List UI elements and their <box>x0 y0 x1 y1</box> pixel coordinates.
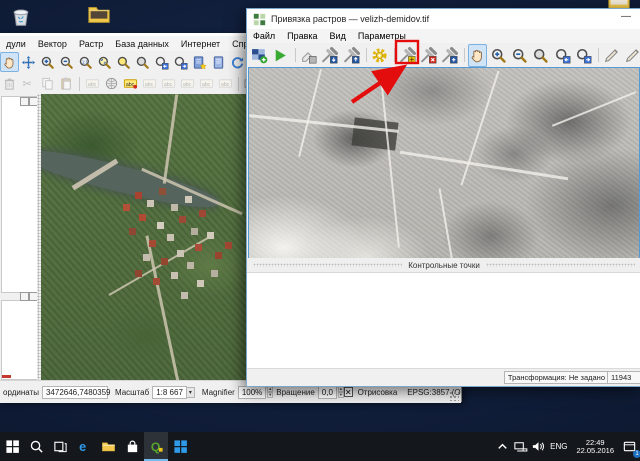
render-checkbox[interactable]: ✕ <box>344 387 353 397</box>
georeferencer-toolbar <box>247 43 640 67</box>
delete-point-icon <box>420 47 437 64</box>
system-tray: ENG 22:49 22.05.2016 1 <box>493 432 640 461</box>
pan-to-selection-icon <box>21 55 36 70</box>
labeling-options-button[interactable]: abc <box>83 74 102 94</box>
action-center-button[interactable]: 1 <box>620 432 638 461</box>
toolbar-separator <box>238 77 239 91</box>
notification-badge: 1 <box>633 450 640 458</box>
transformation-settings-icon <box>371 47 388 64</box>
link-georef-to-qgis-button[interactable] <box>602 44 621 67</box>
hidden-icons-chevron[interactable] <box>493 432 511 461</box>
open-raster-button[interactable] <box>250 44 269 67</box>
browser-panel[interactable] <box>1 300 38 380</box>
cut-features-button[interactable]: ✂ <box>19 74 38 94</box>
left-dock-area <box>0 94 40 380</box>
save-gcp-icon <box>343 47 360 64</box>
transformation-settings-button[interactable] <box>370 44 389 67</box>
photo-dark-block <box>351 117 398 150</box>
layers-panel[interactable] <box>1 96 38 293</box>
splitter-dots[interactable] <box>486 263 635 267</box>
georeferencer-app-icon <box>253 13 266 26</box>
zoom-full-icon <box>97 55 112 70</box>
toolbar-separator <box>366 48 367 62</box>
menu-database[interactable]: База данных <box>109 39 175 49</box>
load-gcp-icon <box>321 47 338 64</box>
scale-label: Масштаб <box>115 388 149 397</box>
link-georef-to-qgis-icon <box>603 47 620 64</box>
start-georeferencing-icon <box>272 47 289 64</box>
highlight-labels-icon: abc <box>161 76 176 91</box>
render-label: Отрисовка <box>358 388 398 397</box>
new-bookmark-button[interactable] <box>190 52 209 72</box>
zoom-to-selection-icon <box>116 55 131 70</box>
pan-button[interactable] <box>0 52 19 72</box>
new-bookmark-icon <box>192 55 207 70</box>
georeferencer-statusbar: Трансформация: Не задано 11943 <box>247 368 640 386</box>
coordinates-input[interactable]: 3472646,7480359 <box>42 386 108 399</box>
task-view-button[interactable] <box>48 432 72 461</box>
minimize-button[interactable]: — <box>619 11 633 25</box>
zoom-to-layer-button[interactable] <box>531 44 550 67</box>
zoom-in-button[interactable] <box>489 44 508 67</box>
move-label-button[interactable]: abc <box>178 74 197 94</box>
zoom-next-icon <box>173 55 188 70</box>
search-button[interactable] <box>24 432 48 461</box>
gcp-section-label: Контрольные точки <box>408 261 480 270</box>
pan-icon <box>2 55 17 70</box>
zoom-to-selection-button[interactable] <box>114 52 133 72</box>
paste-features-icon <box>59 76 74 91</box>
open-raster-icon <box>251 47 268 64</box>
recycle-bin-icon[interactable] <box>8 4 34 30</box>
change-label-icon: abc <box>218 76 233 91</box>
pan-to-selection-button[interactable] <box>19 52 38 72</box>
panel2-float-button[interactable] <box>20 292 29 301</box>
move-point-icon <box>441 47 458 64</box>
svg-text:Q: Q <box>150 440 159 454</box>
menu-vector[interactable]: Вектор <box>32 39 73 49</box>
show-bookmarks-icon <box>211 55 226 70</box>
gdal-script-icon <box>300 47 317 64</box>
windows-app-button[interactable] <box>168 432 192 461</box>
paste-features-button[interactable] <box>57 74 76 94</box>
splitter-dots[interactable] <box>253 263 402 267</box>
store-button[interactable] <box>120 432 144 461</box>
highlight-labels-button[interactable]: abc <box>159 74 178 94</box>
zoom-out-icon <box>511 47 528 64</box>
georeferencer-menubar: ФайлПравкаВидПараметры <box>247 29 640 43</box>
rotate-label-icon: abc <box>199 76 214 91</box>
zoom-out-button[interactable] <box>510 44 529 67</box>
label-pie-icon <box>104 76 119 91</box>
georeferencer-titlebar[interactable]: Привязка растров — velizh-demidov.tif — <box>247 9 640 29</box>
move-point-button[interactable] <box>440 44 459 67</box>
windows-taskbar: e Q ENG 22:49 22.05.2016 1 <box>0 432 640 461</box>
labeling-options-icon: abc <box>85 76 100 91</box>
transformation-status: Трансформация: Не задано <box>504 371 609 384</box>
pan-button[interactable] <box>468 44 487 67</box>
svg-text:abc: abc <box>145 82 154 88</box>
menu-settings[interactable]: Параметры <box>352 31 412 41</box>
zoom-last-button[interactable] <box>152 52 171 72</box>
svg-text:abc: abc <box>88 82 97 88</box>
zoom-native-icon: 1:1 <box>78 55 93 70</box>
add-point-button[interactable] <box>398 44 417 67</box>
start-button[interactable] <box>0 432 24 461</box>
toolbar-separator <box>598 48 599 62</box>
photo-road <box>439 188 454 260</box>
delete-selected-button[interactable] <box>0 74 19 94</box>
toolbar-separator <box>295 48 296 62</box>
scale-combo[interactable]: 1:8 667 <box>152 386 187 399</box>
rotation-label: Вращение <box>276 388 315 397</box>
change-label-button[interactable]: abc <box>216 74 235 94</box>
toolbar-separator <box>394 48 395 62</box>
zoom-last-button[interactable] <box>552 44 571 67</box>
photo-road <box>380 78 400 247</box>
panel-float-button[interactable] <box>20 97 29 106</box>
scale-combo-arrow[interactable]: ▾ <box>186 387 195 398</box>
river-feature <box>41 142 221 216</box>
zoom-next-icon <box>575 47 592 64</box>
gcp-section-header: Контрольные точки <box>247 258 640 272</box>
language-indicator[interactable]: ENG <box>550 442 567 451</box>
zoom-last-icon <box>154 55 169 70</box>
menu-view[interactable]: Вид <box>324 31 352 41</box>
qgis-taskbar-button[interactable]: Q <box>144 432 168 461</box>
clock[interactable]: 22:49 22.05.2016 <box>576 439 614 455</box>
svg-text:abc: abc <box>221 82 230 88</box>
zoom-out-icon <box>59 55 74 70</box>
refresh-button[interactable] <box>228 52 247 72</box>
photo-road <box>552 91 636 127</box>
coordinates-label: ординаты <box>3 388 39 397</box>
zoom-full-button[interactable] <box>95 52 114 72</box>
photo-houses <box>249 68 251 70</box>
road-feature <box>163 94 178 184</box>
zoom-last-icon <box>554 47 571 64</box>
road-feature <box>109 234 214 296</box>
toolbar-separator <box>464 48 465 62</box>
pin-labels-button[interactable]: abc <box>140 74 159 94</box>
menu-modules[interactable]: дули <box>0 39 32 49</box>
toolbar-separator <box>79 77 80 91</box>
svg-text:abc: abc <box>164 82 173 88</box>
menu-file[interactable]: Файл <box>247 31 281 41</box>
svg-text:✂: ✂ <box>22 78 31 91</box>
magnifier-label: Magnifier <box>202 388 235 397</box>
menu-raster[interactable]: Растр <box>73 39 109 49</box>
labeling-active-icon: abc <box>123 76 138 91</box>
pin-labels-icon: abc <box>142 76 157 91</box>
zoom-next-button[interactable] <box>574 44 593 67</box>
georeferencer-title: Привязка растров — velizh-demidov.tif <box>271 14 429 24</box>
raster-canvas[interactable] <box>248 67 640 260</box>
zoom-in-icon <box>490 47 507 64</box>
delete-point-button[interactable] <box>419 44 438 67</box>
rotation-input[interactable]: 0,0 <box>318 386 337 399</box>
refresh-icon <box>230 55 245 70</box>
copy-features-icon <box>40 76 55 91</box>
zoom-out-button[interactable] <box>57 52 76 72</box>
start-georeferencing-button[interactable] <box>271 44 290 67</box>
zoom-next-button[interactable] <box>171 52 190 72</box>
window-resize-grip[interactable] <box>449 391 459 401</box>
svg-text:abc: abc <box>202 82 211 88</box>
screen: дулиВекторРастрБаза данныхИнтернетСправк… <box>0 0 640 461</box>
magnifier-spinner[interactable]: ▲▼ <box>267 386 273 398</box>
volume-icon[interactable] <box>529 432 547 461</box>
pan-icon <box>469 47 486 64</box>
link-qgis-to-georef-icon <box>624 47 640 64</box>
load-gcp-button[interactable] <box>320 44 339 67</box>
clock-date: 22.05.2016 <box>576 447 614 455</box>
zoom-to-layer-icon <box>532 47 549 64</box>
gdal-script-button[interactable] <box>299 44 318 67</box>
cursor-coordinate-status: 11943 <box>607 371 640 384</box>
georeferencer-dialog: Привязка растров — velizh-demidov.tif — … <box>246 8 640 387</box>
copy-features-button[interactable] <box>38 74 57 94</box>
cut-features-icon: ✂ <box>21 76 36 91</box>
menu-web[interactable]: Интернет <box>175 39 226 49</box>
svg-text:abc: abc <box>183 82 192 88</box>
show-bookmarks-button[interactable] <box>209 52 228 72</box>
svg-text:e: e <box>79 440 86 454</box>
add-point-icon <box>399 47 416 64</box>
zoom-to-layer-button[interactable] <box>133 52 152 72</box>
desktop-folder-icon[interactable] <box>86 1 112 27</box>
panel-text-fragment <box>2 375 11 378</box>
buildings-cluster <box>41 94 44 97</box>
rotate-label-button[interactable]: abc <box>197 74 216 94</box>
network-icon[interactable] <box>511 432 529 461</box>
save-gcp-button[interactable] <box>341 44 360 67</box>
file-explorer-button[interactable] <box>96 432 120 461</box>
photo-road <box>298 69 322 157</box>
labeling-active-button[interactable]: abc <box>121 74 140 94</box>
delete-selected-icon <box>2 76 17 91</box>
zoom-in-button[interactable] <box>38 52 57 72</box>
zoom-native-button[interactable]: 1:1 <box>76 52 95 72</box>
link-qgis-to-georef-button[interactable] <box>623 44 640 67</box>
menu-edit[interactable]: Правка <box>281 31 323 41</box>
label-pie-button[interactable] <box>102 74 121 94</box>
zoom-to-layer-icon <box>135 55 150 70</box>
magnifier-input[interactable]: 100% <box>238 386 266 399</box>
zoom-in-icon <box>40 55 55 70</box>
gcp-table[interactable] <box>247 272 640 369</box>
edge-button[interactable]: e <box>72 432 96 461</box>
svg-text:1:1: 1:1 <box>82 59 89 64</box>
move-label-icon: abc <box>180 76 195 91</box>
photo-road <box>400 151 568 181</box>
